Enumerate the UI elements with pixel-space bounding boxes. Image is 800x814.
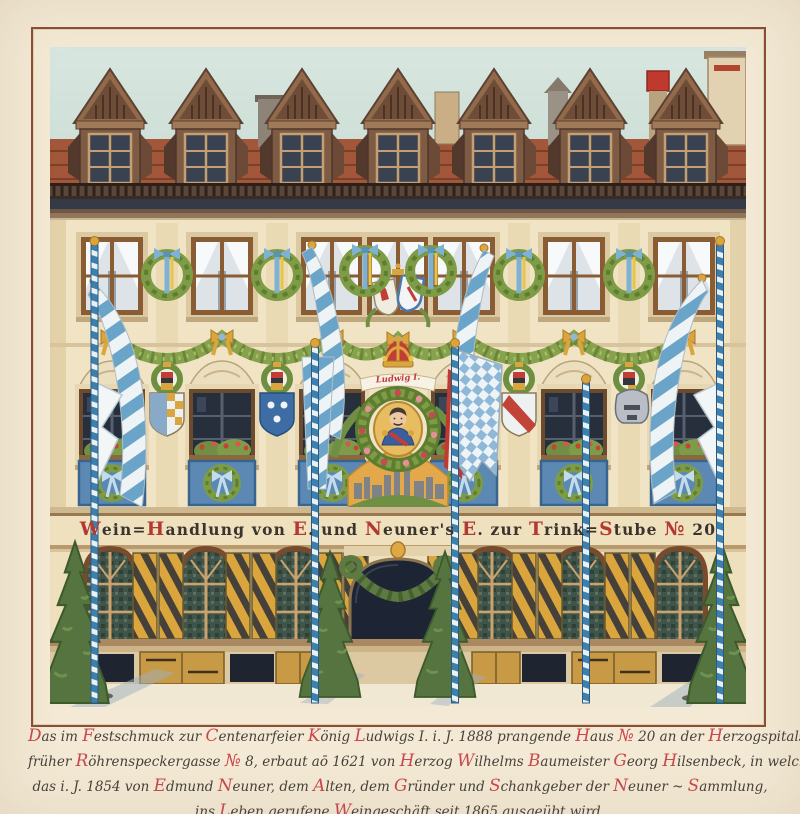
bavarian-lozenge-flag — [454, 349, 502, 481]
wreath-panel — [541, 461, 607, 505]
facade-scene — [50, 47, 746, 707]
maypole — [582, 375, 591, 704]
maypole — [716, 237, 725, 704]
upper-window — [186, 232, 258, 322]
caption: Das im Festschmuck zur Centenarfeier Kön… — [28, 724, 772, 814]
caption-line-3: das i. J. 1854 von Edmund Neuner, dem Al… — [28, 774, 772, 799]
middle-window — [537, 384, 611, 470]
arched-window — [652, 546, 708, 644]
ground-floor — [50, 542, 746, 707]
album-page: Wein=Handlung von E. und Neuner's E. zur… — [0, 0, 800, 814]
middle-window — [185, 384, 259, 470]
maypole — [90, 237, 99, 704]
watercolor-painting — [50, 47, 746, 707]
maypole — [311, 339, 320, 704]
maypole — [451, 339, 460, 704]
red-chimney-cap — [647, 71, 669, 91]
cornice — [50, 199, 746, 220]
caption-line-2: früher Röhrenspeckergasse № 8, erbaut aō… — [28, 749, 772, 774]
wreath-panel — [189, 461, 255, 505]
gold-lantern — [391, 542, 405, 558]
roof-railing — [50, 183, 746, 199]
caption-line-1: Das im Festschmuck zur Centenarfeier Kön… — [28, 724, 772, 749]
upper-window — [538, 232, 610, 322]
caption-line-4: ins Leben gerufene Weingeschäft seit 186… — [28, 799, 772, 814]
upper-window — [362, 232, 434, 322]
